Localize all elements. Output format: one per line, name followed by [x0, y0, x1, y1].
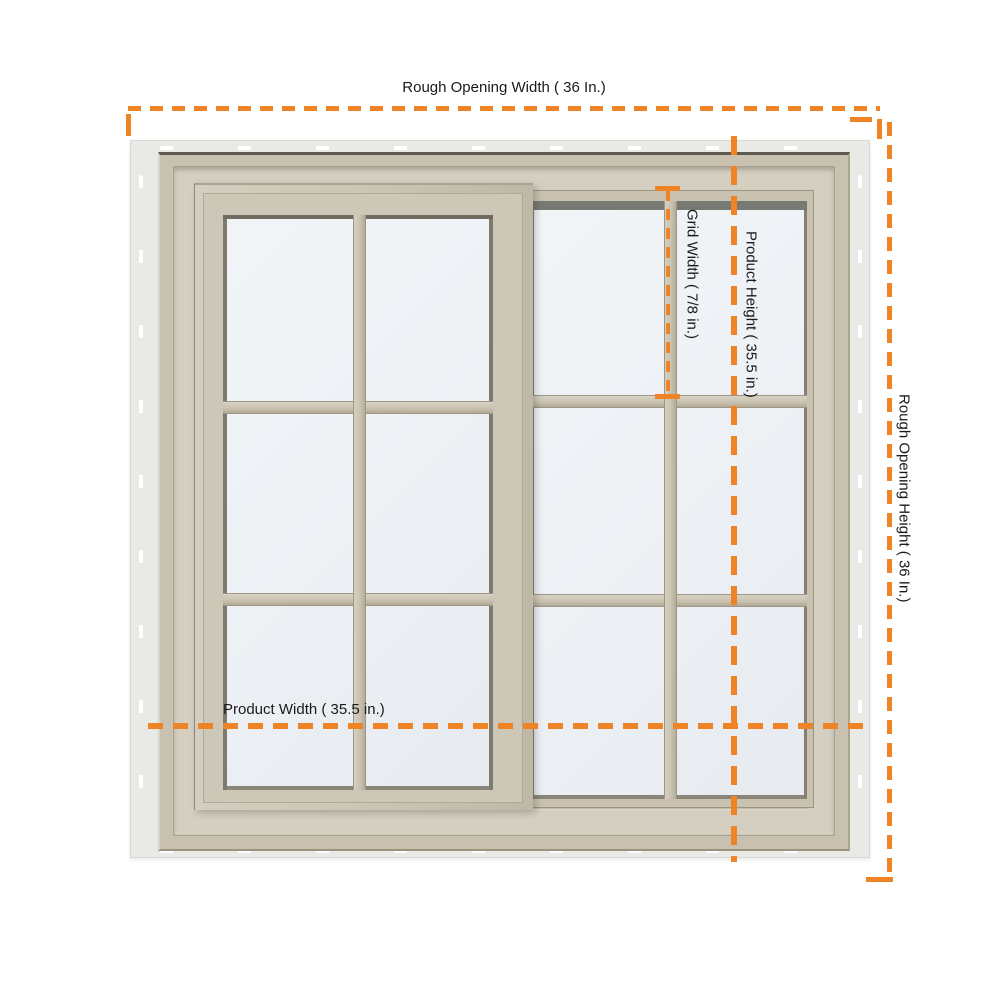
rough-opening-height-line	[887, 122, 892, 876]
rough-opening-height-top-cap	[877, 119, 882, 139]
product-width-label: Product Width ( 35.5 in.)	[223, 701, 385, 718]
rough-opening-width-right-cap	[850, 117, 872, 122]
product-width-line	[148, 723, 866, 729]
grid-width-bottom-cap	[655, 394, 680, 399]
grid-width-top-cap	[655, 186, 680, 191]
grid-width-label: Grid Width ( 7/8 in.)	[683, 209, 700, 339]
nail-slots-top	[160, 146, 850, 150]
product-height-line	[731, 136, 737, 862]
nail-slots-left	[139, 175, 143, 825]
product-height-label: Product Height ( 35.5 in.)	[742, 231, 759, 398]
grid-width-line	[666, 190, 670, 398]
rough-opening-height-bottom-cap	[866, 877, 893, 882]
rough-opening-width-line	[128, 106, 880, 111]
rough-opening-height-label: Rough Opening Height ( 36 In.)	[893, 121, 915, 875]
rough-opening-width-label: Rough Opening Width ( 36 In.)	[128, 79, 880, 96]
product-diagram: Rough Opening Width ( 36 In.) Rough Open…	[0, 0, 1000, 1000]
rough-opening-width-left-cap	[126, 114, 131, 136]
